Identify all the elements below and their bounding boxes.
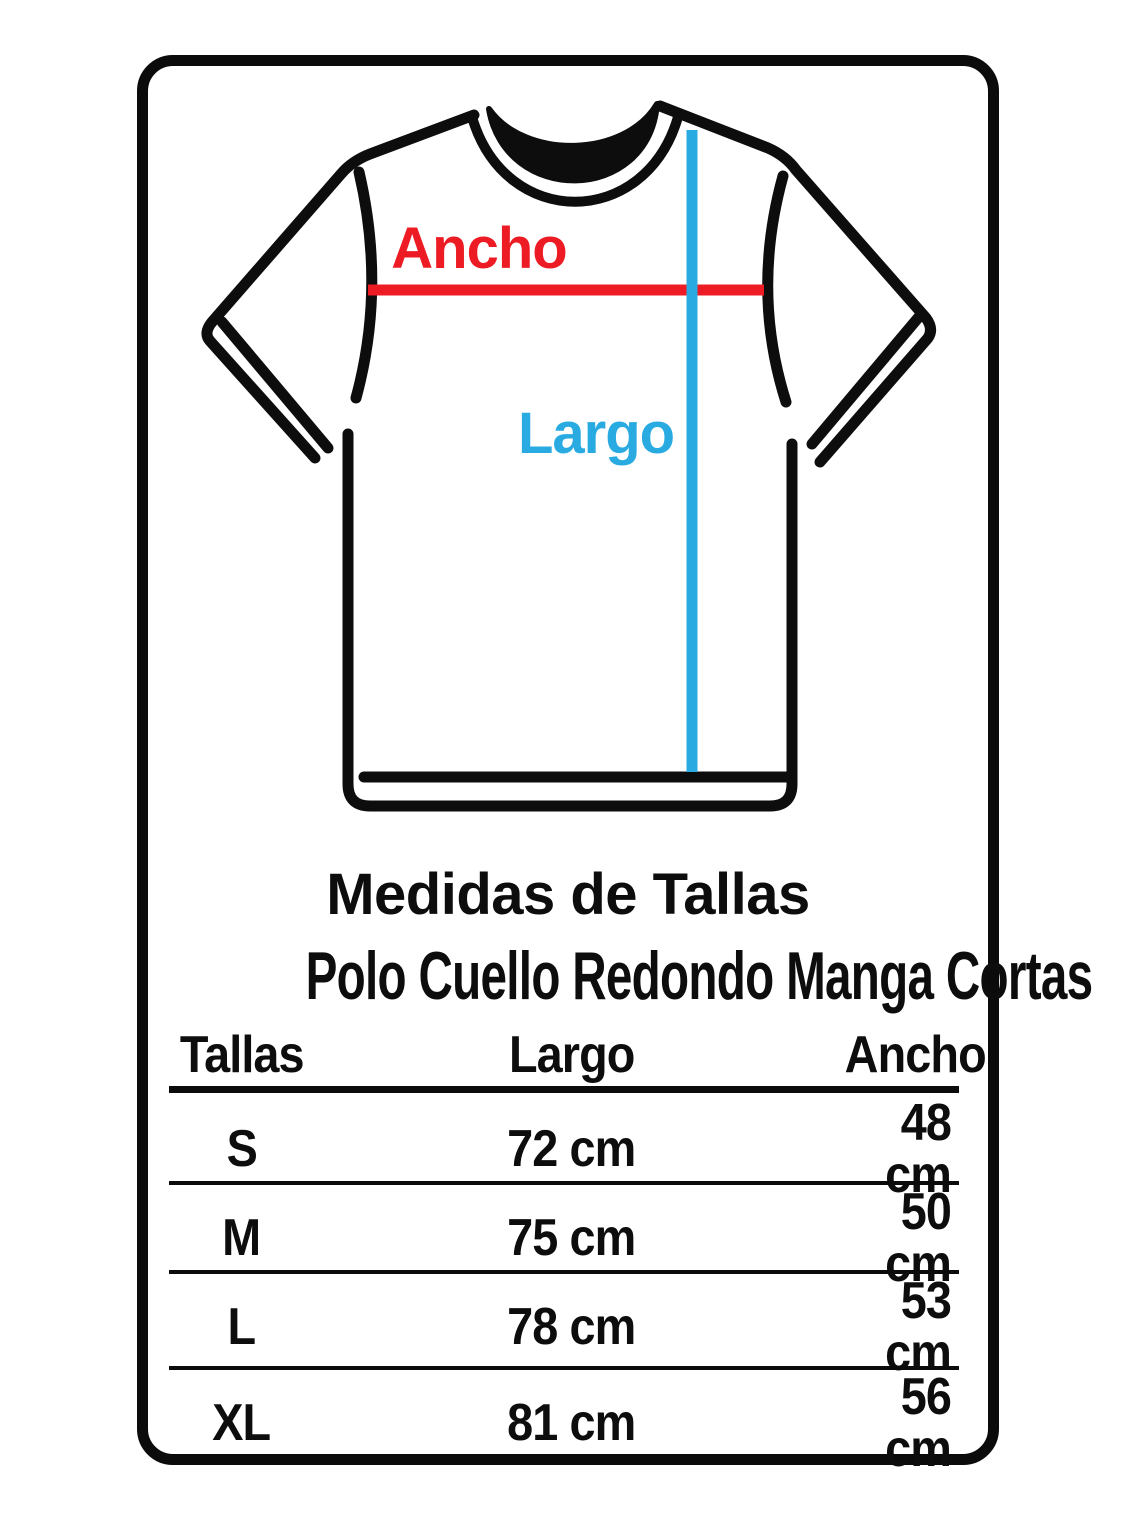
table-row-s: S 72 cm 48 cm <box>169 1097 959 1182</box>
table-divider <box>169 1270 959 1274</box>
table-header-row: Tallas Largo Ancho <box>169 1019 959 1091</box>
header-largo: Largo <box>314 1029 829 1081</box>
size-cell: S <box>169 1123 314 1175</box>
largo-cell: 78 cm <box>314 1301 829 1353</box>
largo-label: Largo <box>496 405 696 463</box>
size-cell: L <box>169 1301 314 1353</box>
header-ancho: Ancho <box>829 1029 959 1081</box>
table-divider <box>169 1366 959 1370</box>
page-subtitle: Polo Cuello Redondo Manga Cortas <box>137 942 999 1010</box>
page-subtitle-text: Polo Cuello Redondo Manga Cortas <box>306 942 1093 1010</box>
largo-cell: 75 cm <box>314 1212 829 1264</box>
page-title: Medidas de Tallas <box>137 866 999 924</box>
table-row-xl: XL 81 cm 56 cm <box>169 1371 959 1453</box>
table-divider <box>169 1181 959 1185</box>
ancho-cell: 53 cm <box>829 1275 959 1379</box>
size-cell: M <box>169 1212 314 1264</box>
size-cell: XL <box>169 1397 314 1449</box>
header-tallas: Tallas <box>169 1029 314 1081</box>
largo-cell: 81 cm <box>314 1397 829 1449</box>
largo-cell: 72 cm <box>314 1123 829 1175</box>
ancho-cell: 56 cm <box>829 1371 959 1475</box>
table-header-divider <box>169 1086 959 1093</box>
table-row-m: M 75 cm 50 cm <box>169 1186 959 1271</box>
size-chart-card: Ancho Largo Medidas de Tallas Polo Cuell… <box>0 0 1140 1520</box>
table-row-l: L 78 cm 53 cm <box>169 1275 959 1360</box>
ancho-label: Ancho <box>379 220 579 278</box>
